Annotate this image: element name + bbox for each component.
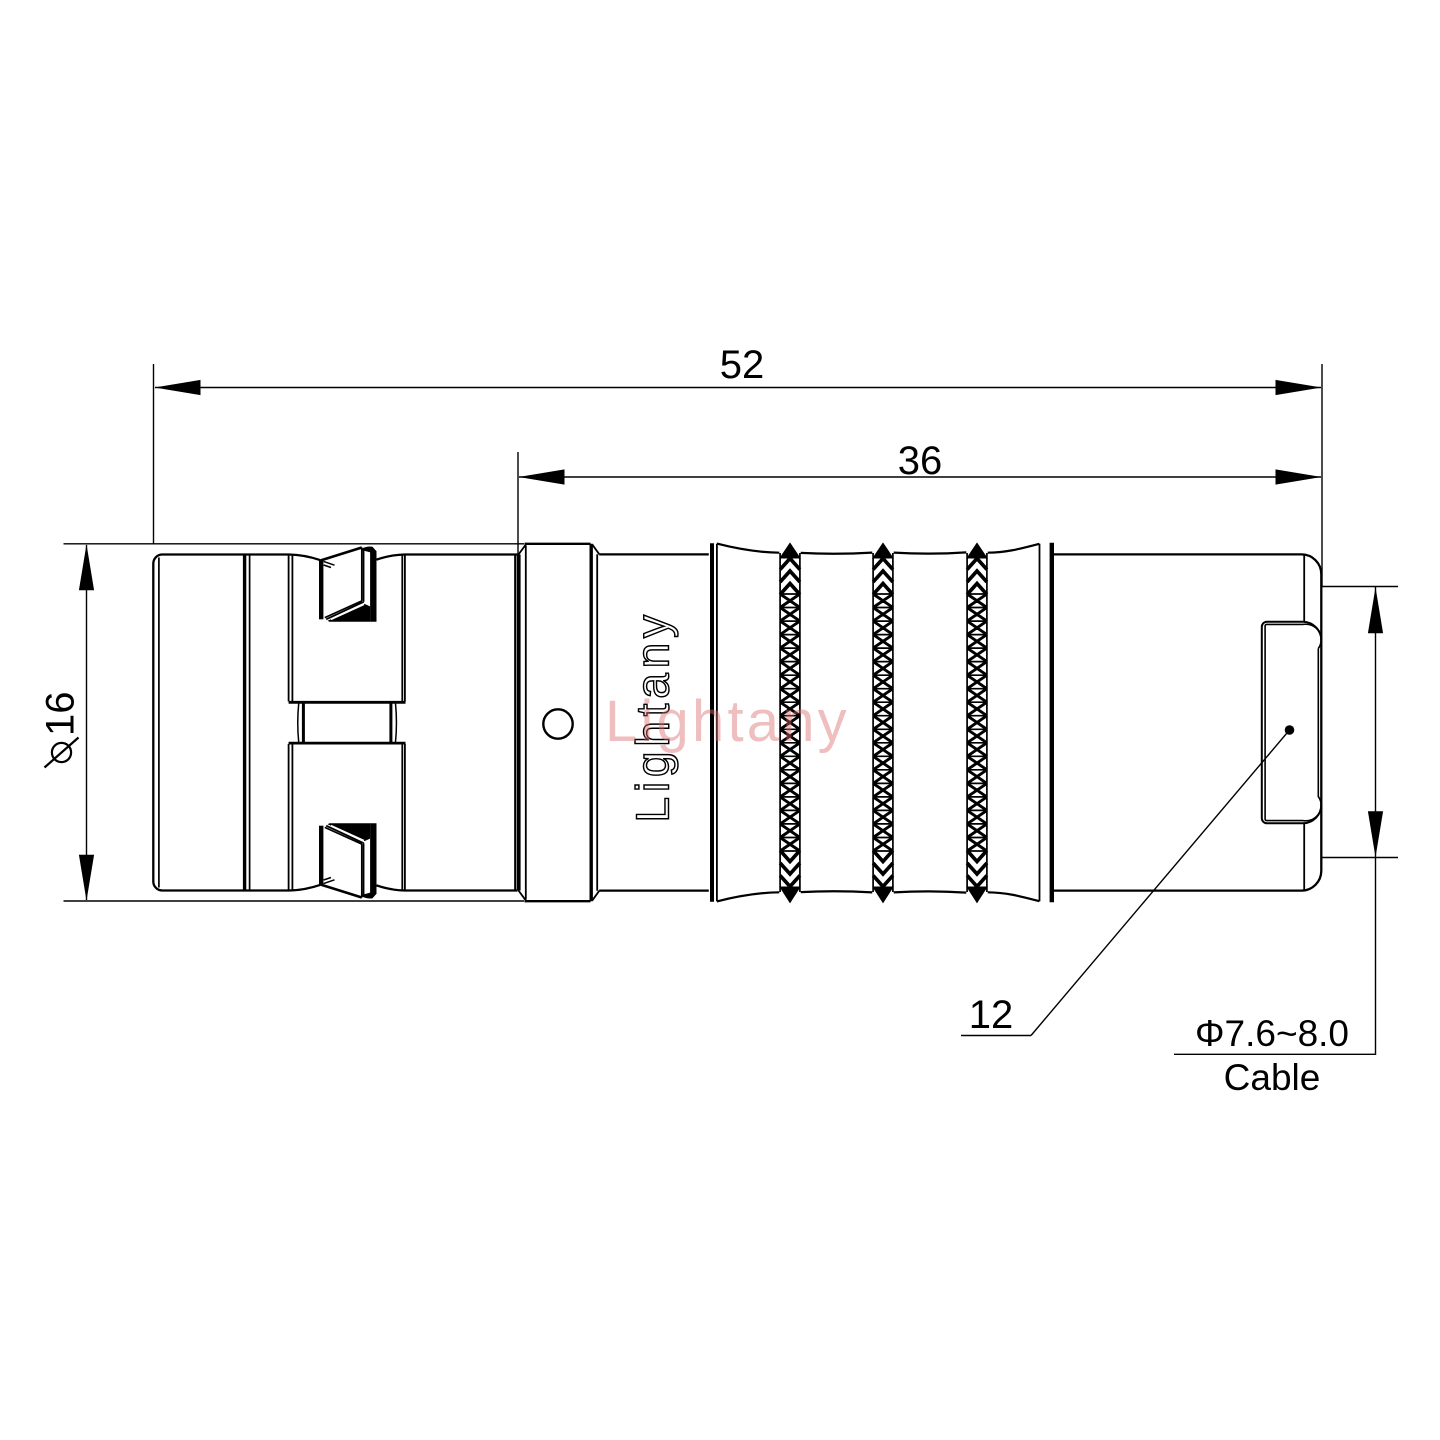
svg-text:52: 52	[720, 343, 765, 387]
svg-text:16: 16	[39, 692, 83, 737]
svg-text:12: 12	[969, 993, 1014, 1037]
svg-text:Lightany: Lightany	[605, 689, 850, 754]
svg-text:36: 36	[898, 439, 943, 483]
svg-text:Φ7.6~8.0: Φ7.6~8.0	[1195, 1013, 1349, 1054]
svg-text:Cable: Cable	[1224, 1057, 1321, 1098]
